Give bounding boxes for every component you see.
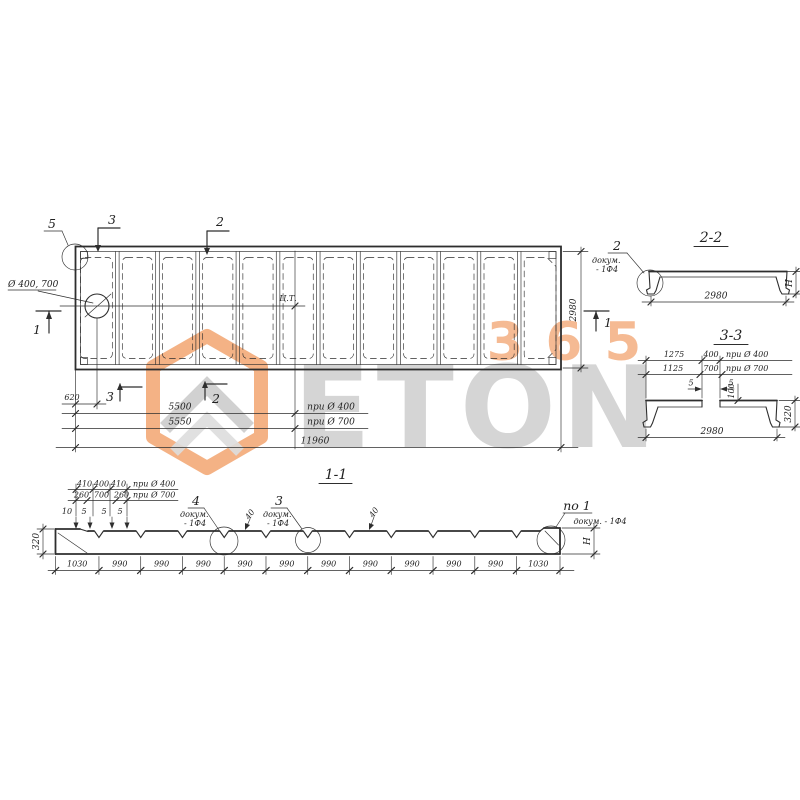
- callout-doc-line2: - 1Ф4: [596, 265, 618, 274]
- dim-320-left: 320: [32, 533, 42, 550]
- detail-5-leader: [62, 231, 68, 245]
- profile-right-leg: [766, 401, 780, 428]
- down-arrow: [110, 523, 115, 530]
- bottom-dim-2: 990: [112, 560, 127, 569]
- dim-410-a: 410: [76, 480, 92, 489]
- bottom-dim-8: 990: [363, 560, 378, 569]
- drawing-sheet: 365 ETON Ø 400, 700 Ц.Т. 5 3: [0, 0, 800, 800]
- dim-400: 400: [702, 350, 718, 359]
- dim-5500: 5500: [169, 403, 192, 413]
- down-arrow: [125, 523, 130, 530]
- bottom-dim-12: 1030: [528, 560, 548, 569]
- detail-label-5: 5: [48, 216, 56, 231]
- dim-H: H: [785, 279, 795, 288]
- bottom-dim-9: 990: [405, 560, 420, 569]
- callout-4-doc1: докум.: [180, 510, 208, 519]
- section-3-3-title: 3-3: [720, 328, 743, 344]
- left-end-diagonal: [58, 533, 87, 553]
- callout-leader: [204, 508, 219, 530]
- dim-410-b: 410: [110, 480, 126, 489]
- section-label-3-bottom: 3: [106, 389, 114, 404]
- dim-100: 100: [727, 383, 736, 398]
- dim-5-a: 5: [81, 507, 86, 516]
- bottom-dim-3: 990: [154, 560, 169, 569]
- hole-diameter-label: Ø 400, 700: [7, 279, 59, 290]
- technical-drawing-canvas: 365 ETON Ø 400, 700 Ц.Т. 5 3: [0, 0, 800, 800]
- dim-1125: 1125: [663, 364, 683, 373]
- dim-total: 11960: [301, 437, 330, 447]
- left-end-chamfer: [80, 529, 88, 532]
- callout-4-number: 4: [191, 493, 200, 508]
- gap-arrow: [695, 387, 702, 392]
- gap-arrow: [720, 387, 727, 392]
- dim-H-right: H: [583, 537, 593, 546]
- bottom-dim-7: 990: [321, 560, 336, 569]
- dim-260-b: 260: [113, 491, 129, 500]
- dim-40-a: 40: [243, 508, 257, 522]
- down-arrow: [88, 523, 93, 530]
- dim-620: 620: [64, 393, 79, 402]
- bottom-dim-4: 990: [196, 560, 211, 569]
- bottom-dim-5: 990: [237, 560, 252, 569]
- callout-doc-line1: докум.: [592, 256, 620, 265]
- dim-400: 400: [93, 480, 109, 489]
- section-label-3-top: 3: [108, 212, 116, 227]
- profile-left-leg: [647, 272, 661, 295]
- callout-3-doc2: - 1Ф4: [267, 519, 289, 528]
- dim-row2-cond: при Ø 700: [133, 491, 175, 500]
- callout-end-doc: докум. - 1Ф4: [573, 517, 626, 526]
- dim-700: 700: [703, 364, 718, 373]
- dim-10: 10: [62, 507, 72, 516]
- section-arrow: [46, 311, 52, 319]
- down-arrow: [74, 523, 79, 530]
- cg-label: Ц.Т.: [279, 294, 296, 303]
- dim-5-b: 5: [101, 507, 106, 516]
- dim-40-b: 40: [367, 506, 381, 520]
- watermark: 365 ETON: [153, 312, 663, 474]
- section-1-1: 1-1 103099099099099099099099099099099010…: [32, 467, 627, 575]
- callout-leader: [627, 253, 644, 273]
- dim-2980: 2980: [700, 427, 724, 437]
- dim-5500-condition: при Ø 400: [307, 402, 355, 413]
- dim-cond-400: при Ø 400: [726, 350, 768, 359]
- callout-3-number: 3: [275, 493, 283, 508]
- dim-5550: 5550: [169, 418, 192, 428]
- callout-3-doc1: докум.: [263, 510, 291, 519]
- plan-opening: [243, 258, 273, 359]
- bottom-dim-10: 990: [446, 560, 461, 569]
- bottom-dim-1: 1030: [67, 560, 87, 569]
- dim-cond-700: при Ø 700: [726, 364, 768, 373]
- corner-plate: [549, 252, 556, 259]
- section-1-1-title: 1-1: [325, 467, 348, 483]
- section-label-2-top: 2: [215, 214, 224, 229]
- down-arrow: [245, 523, 250, 530]
- plan-opening: [122, 258, 152, 359]
- down-arrow: [369, 523, 374, 530]
- dim-5-c: 5: [117, 507, 122, 516]
- dim-1275: 1275: [664, 350, 684, 359]
- dim-700: 700: [94, 491, 109, 500]
- dim-320: 320: [784, 405, 794, 422]
- dim-2980: 2980: [704, 292, 728, 302]
- section-2-2: 2-2 2 докум. - 1Ф4 2980 H: [592, 230, 800, 306]
- right-end-diagonal: [545, 531, 559, 545]
- bottom-dim-11: 990: [488, 560, 503, 569]
- dim-plan-width: 2980: [569, 298, 579, 322]
- section-label-1-right: 1: [604, 315, 612, 330]
- section-1-1-generated: 10309909909909909909909909909909901030: [52, 529, 563, 574]
- dim-260-a: 260: [73, 491, 89, 500]
- dim-5-left: 5: [688, 379, 693, 388]
- section-label-2-bottom: 2: [211, 391, 220, 406]
- dim-5550-condition: при Ø 700: [307, 417, 355, 428]
- section-label-1-left: 1: [33, 322, 41, 337]
- callout-4-doc2: - 1Ф4: [184, 519, 206, 528]
- section-arrow: [95, 245, 101, 252]
- dim-row1-cond: при Ø 400: [133, 480, 175, 489]
- callout-2-number: 2: [612, 238, 621, 253]
- section-2-2-title: 2-2: [699, 230, 723, 246]
- callout-end-number: по 1: [563, 498, 591, 513]
- hole-leader: [38, 291, 93, 303]
- bottom-dim-6: 990: [279, 560, 294, 569]
- callout-leader: [556, 513, 565, 527]
